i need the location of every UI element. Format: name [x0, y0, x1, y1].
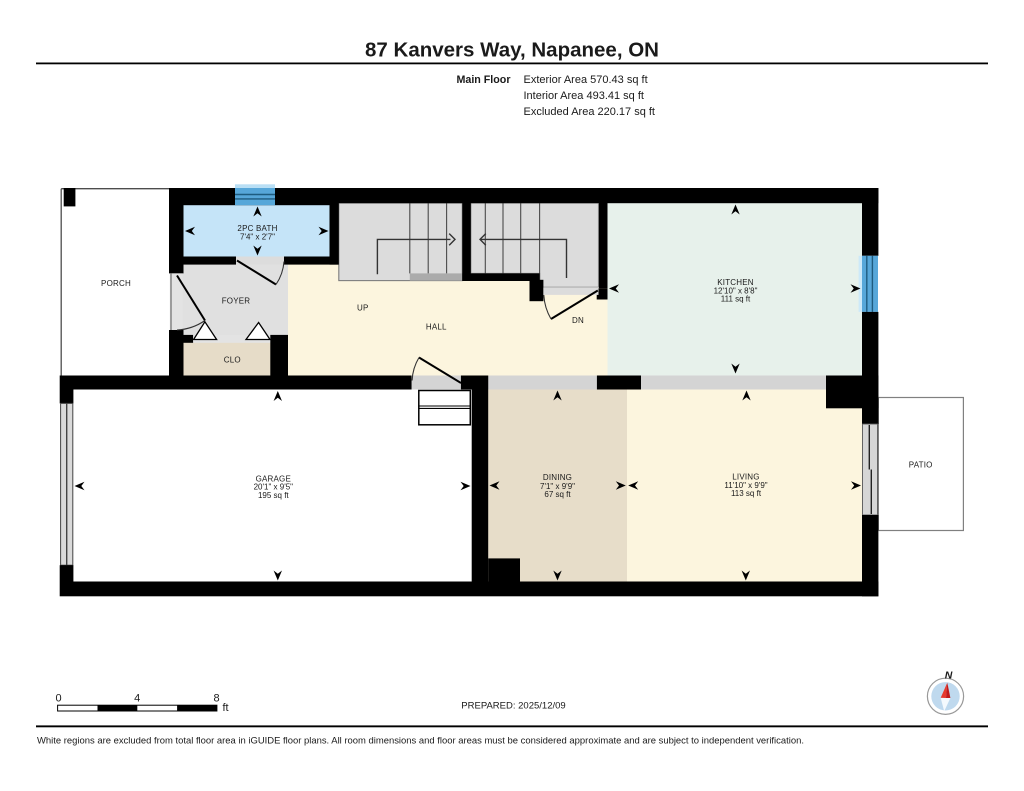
svg-text:4: 4 — [134, 693, 140, 705]
svg-text:ft: ft — [223, 702, 229, 714]
svg-text:DINING: DINING — [543, 473, 572, 482]
svg-text:0: 0 — [55, 693, 61, 705]
svg-text:113 sq ft: 113 sq ft — [731, 489, 762, 498]
svg-text:FOYER: FOYER — [222, 296, 251, 305]
svg-text:8: 8 — [213, 693, 219, 705]
svg-text:195 sq ft: 195 sq ft — [258, 491, 289, 500]
svg-text:N: N — [945, 670, 953, 682]
svg-text:111 sq ft: 111 sq ft — [721, 295, 751, 304]
svg-text:7'4" x 2'7": 7'4" x 2'7" — [240, 232, 275, 241]
svg-text:White regions are excluded fro: White regions are excluded from total fl… — [37, 736, 804, 747]
svg-text:PATIO: PATIO — [909, 460, 933, 469]
svg-text:Interior Area 493.41 sq ft: Interior Area 493.41 sq ft — [524, 90, 644, 102]
svg-text:HALL: HALL — [426, 323, 447, 332]
svg-text:Main Floor: Main Floor — [456, 74, 510, 86]
svg-text:CLO: CLO — [224, 355, 241, 364]
svg-text:PREPARED: 2025/12/09: PREPARED: 2025/12/09 — [461, 701, 565, 712]
svg-text:DN: DN — [572, 316, 584, 325]
svg-text:PORCH: PORCH — [101, 279, 131, 288]
svg-text:67 sq ft: 67 sq ft — [544, 490, 571, 499]
svg-text:87 Kanvers Way, Napanee, ON: 87 Kanvers Way, Napanee, ON — [365, 39, 659, 62]
svg-text:UP: UP — [357, 304, 369, 313]
svg-text:Exterior Area 570.43 sq ft: Exterior Area 570.43 sq ft — [524, 74, 648, 86]
svg-text:Excluded Area 220.17 sq ft: Excluded Area 220.17 sq ft — [524, 106, 655, 118]
